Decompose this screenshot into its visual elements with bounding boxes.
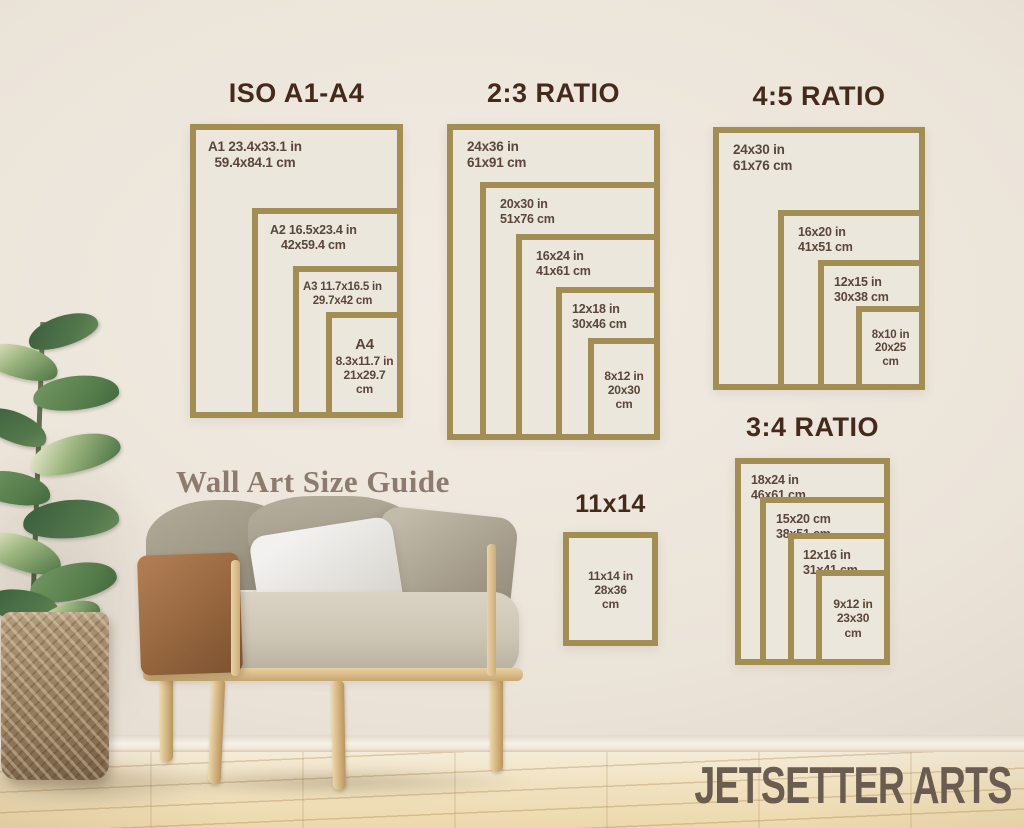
frame-size-label: 24x30 in 61x76 cm: [733, 142, 792, 174]
chair-leg: [490, 672, 503, 772]
chair-wood-post: [487, 544, 496, 676]
size-group-4-5-ratio: 4:5 RATIO 24x30 in 61x76 cm 16x20 in 41x…: [713, 127, 925, 390]
frame-size-label: 16x24 in 41x61 cm: [536, 249, 591, 279]
frame-size-label: 11x14 in 28x36 cm: [569, 538, 652, 640]
frame-size-label: A4 8.3x11.7 in 21x29.7 cm: [332, 318, 397, 412]
frame-size-label: 16x20 in 41x51 cm: [798, 225, 853, 255]
armchair: [130, 492, 530, 802]
size-group-iso: ISO A1-A4 A1 23.4x33.1 in 59.4x84.1 cm A…: [190, 124, 403, 418]
chair-leather-pocket: [137, 552, 243, 675]
chair-leg: [160, 672, 173, 762]
size-frame-11x14: 11x14 in 28x36 cm: [563, 532, 658, 646]
frame-size-label: A2 16.5x23.4 in 42x59.4 cm: [270, 223, 357, 253]
wall-art-size-guide-scene: ISO A1-A4 A1 23.4x33.1 in 59.4x84.1 cm A…: [0, 0, 1024, 828]
chair-leg: [331, 680, 346, 790]
size-group-11x14: 11x14 11x14 in 28x36 cm: [563, 532, 658, 646]
size-frame-8x12: 8x12 in 20x30 cm: [588, 338, 660, 440]
frame-size-label: 8x10 in 20x25 cm: [862, 312, 919, 384]
group-title-11x14: 11x14: [533, 490, 688, 519]
brand-logo-text: JETSETTER ARTS: [695, 756, 1012, 816]
frame-size-label: 9x12 in 23x30 cm: [822, 576, 884, 659]
chair-wood-post: [231, 560, 240, 676]
size-frame-a4: A4 8.3x11.7 in 21x29.7 cm: [326, 312, 403, 418]
guide-title: Wall Art Size Guide: [176, 464, 450, 500]
group-title-iso: ISO A1-A4: [160, 78, 433, 109]
size-frame-8x10: 8x10 in 20x25 cm: [856, 306, 925, 390]
wicker-plant-pot: [1, 612, 109, 780]
frame-size-label: 12x15 in 30x38 cm: [834, 275, 889, 305]
group-title-2-3-ratio: 2:3 RATIO: [417, 78, 690, 109]
group-title-3-4-ratio: 3:4 RATIO: [705, 412, 920, 443]
frame-size-label: 12x18 in 30x46 cm: [572, 302, 627, 332]
chair-leg: [208, 678, 226, 784]
frame-size-label: 20x30 in 51x76 cm: [500, 197, 555, 227]
frame-size-label: A1 23.4x33.1 in 59.4x84.1 cm: [208, 139, 302, 171]
group-title-4-5-ratio: 4:5 RATIO: [683, 81, 955, 112]
size-group-2-3-ratio: 2:3 RATIO 24x36 in 61x91 cm 20x30 in 51x…: [447, 124, 660, 440]
size-frame-9x12: 9x12 in 23x30 cm: [816, 570, 890, 665]
frame-size-label: 8x12 in 20x30 cm: [594, 344, 654, 434]
frame-size-label: 24x36 in 61x91 cm: [467, 139, 526, 171]
chair-shadow: [125, 768, 535, 796]
frame-size-label: A3 11.7x16.5 in 29.7x42 cm: [303, 281, 382, 308]
size-group-3-4-ratio: 3:4 RATIO 18x24 in 46x61 cm 15x20 cm 38x…: [735, 458, 890, 665]
